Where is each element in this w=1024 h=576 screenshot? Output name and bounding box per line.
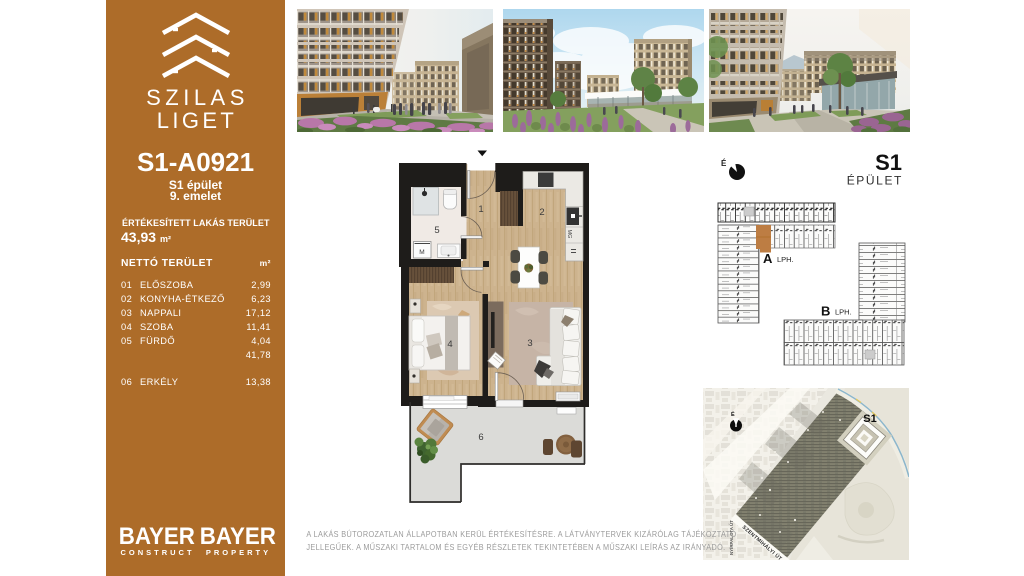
svg-text:ÉPÜLET: ÉPÜLET (847, 173, 903, 188)
svg-text:É: É (721, 159, 727, 168)
svg-text:S1: S1 (875, 150, 902, 175)
svg-text:B: B (821, 304, 830, 319)
svg-text:4: 4 (447, 339, 452, 350)
svg-text:2: 2 (539, 207, 544, 218)
svg-text:1: 1 (478, 204, 483, 215)
svg-text:5: 5 (434, 225, 439, 236)
svg-text:3: 3 (527, 338, 532, 349)
svg-text:S1: S1 (863, 413, 876, 425)
svg-text:LPH.: LPH. (835, 308, 852, 317)
svg-text:LPH.: LPH. (777, 255, 794, 264)
svg-text:É: É (731, 410, 735, 418)
svg-text:MG: MG (566, 229, 572, 238)
svg-text:6: 6 (478, 432, 483, 443)
svg-text:M: M (419, 249, 424, 256)
svg-text:A: A (763, 251, 773, 266)
